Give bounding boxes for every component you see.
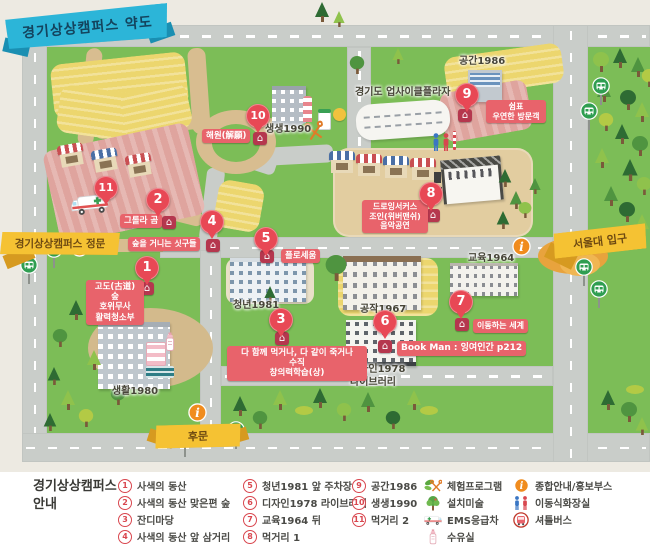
marker-number: 6: [373, 310, 397, 334]
bus-stop-icon: [590, 280, 608, 310]
marker-number: 1: [135, 256, 159, 280]
marker-10-label: 해원(解願): [202, 129, 250, 143]
legend-item: 3잔디마당: [118, 511, 230, 528]
tree-icon: [253, 411, 267, 429]
tree-icon: [272, 390, 288, 410]
legend-label: 생생1990: [371, 495, 417, 510]
map-marker-9[interactable]: 9: [455, 83, 479, 107]
tree-icon: [47, 367, 61, 385]
tree-icon: [386, 411, 400, 429]
market-stall: [356, 154, 382, 176]
tree-icon: [603, 186, 619, 206]
tree-icon: [350, 56, 364, 74]
marker-6-label: Book Man : 잉여인간 p212: [397, 341, 526, 356]
legend-label: 체험프로그램: [447, 478, 502, 493]
legend-item: 설치미술: [424, 494, 502, 511]
tree-icon: [619, 202, 635, 222]
legend-label: 청년1981 앞 주차장: [262, 478, 352, 493]
market-stall: [56, 142, 85, 168]
tree-icon: [326, 255, 347, 281]
legend-label: 수유실: [447, 529, 475, 544]
label-gyoyuk: 교육1964: [468, 253, 514, 266]
window-row: [364, 111, 442, 118]
tree-icon: [314, 2, 330, 22]
market-stall: [124, 152, 153, 178]
legend-item: 4사색의 동산 앞 삼거리: [118, 528, 230, 545]
marker-3-label: 다 함께 먹거나, 다 같이 죽거나 수직 창의력학습(상): [227, 346, 367, 381]
map-marker-11[interactable]: 11: [94, 176, 118, 200]
legend-number: 2: [118, 496, 132, 510]
map-marker-8[interactable]: 8: [419, 182, 443, 206]
info-booth-icon: [512, 477, 530, 494]
map-marker-2[interactable]: 2: [146, 188, 170, 212]
legend-label: 이동식화장실: [535, 495, 590, 510]
map-marker-7[interactable]: 7: [449, 290, 473, 314]
tree-icon: [420, 406, 436, 416]
legend: 경기상상캠퍼스 안내 1사색의 동산 2사색의 동산 맞은편 숲 3잔디마당 4…: [0, 472, 650, 548]
market-stall: [90, 147, 119, 173]
tree-icon: [498, 169, 512, 187]
legend-column-icons-1: 체험프로그램 설치미술 EMS응급차 수유실: [424, 477, 502, 545]
marker-number: 2: [146, 188, 170, 212]
legend-item: 10생생1990: [352, 494, 417, 511]
marker-1-label: 고도(古道) 숲 호위무사 활력청소부: [86, 280, 144, 325]
map-marker-3[interactable]: 3: [269, 308, 293, 332]
stage: [440, 155, 504, 204]
legend-column-1: 1사색의 동산 2사색의 동산 맞은편 숲 3잔디마당 4사색의 동산 앞 삼거…: [118, 477, 230, 545]
legend-item: 수유실: [424, 528, 502, 545]
map-marker-6[interactable]: 6: [373, 310, 397, 334]
legend-label: 사색의 동산: [137, 478, 186, 493]
legend-label: 먹거리 2: [371, 512, 409, 527]
marker-number: 11: [94, 176, 118, 200]
legend-item: 9공간1986: [352, 477, 417, 494]
legend-item: 이동식화장실: [512, 494, 612, 511]
legend-label: 공간1986: [371, 478, 417, 493]
nursing-room-icon: [164, 332, 176, 352]
shuttle-bus-icon: [512, 511, 530, 528]
info-icon: [512, 237, 531, 256]
tree-icon: [634, 102, 650, 122]
bus-stop-icon: [580, 102, 598, 132]
marker-9-label: 쉼표 우연한 방문객: [486, 100, 546, 123]
main-gate-ribbon: 경기상상캠퍼스 정문: [0, 232, 120, 255]
marker-4-label: 숲을 거니는 싯구들: [128, 237, 200, 251]
nursing-booth: [146, 342, 166, 366]
tree-icon: [599, 113, 613, 131]
legend-item: 8먹거리 1: [243, 528, 367, 545]
legend-item: 7교육1964 뒤: [243, 511, 367, 528]
marker-number: 7: [449, 290, 473, 314]
legend-item: EMS응급차: [424, 511, 502, 528]
nursing-room-icon: [424, 528, 442, 545]
legend-number: 11: [352, 513, 366, 527]
tree-icon: [60, 390, 76, 410]
marker-7-label: 이동하는 세계: [473, 319, 528, 333]
tower-decoration: [303, 96, 312, 122]
legend-label: 셔틀버스: [535, 512, 572, 527]
building-gongjak-1967: [343, 256, 421, 310]
tree-icon: [360, 392, 376, 412]
tree-icon: [600, 390, 616, 410]
legend-label: EMS응급차: [447, 512, 499, 527]
legend-number: 6: [243, 496, 257, 510]
map-marker-10[interactable]: 10: [246, 104, 270, 128]
tree-icon: [635, 417, 649, 435]
legend-label: 설치미술: [447, 495, 484, 510]
legend-item: 6디자인1978 라이브러리: [243, 494, 367, 511]
campus-map: 생활1980 청년1981 공작1967 디자인1978 라이브러리 교육196…: [0, 0, 650, 548]
tree-icon: [232, 396, 248, 416]
marker-number: 8: [419, 182, 443, 206]
experience-program-icon: [424, 477, 442, 494]
tree-icon: [53, 329, 67, 347]
tree-icon: [642, 69, 650, 87]
craft-bell-icon: [333, 108, 346, 121]
market-stall: [410, 158, 436, 180]
marker-number: 9: [455, 83, 479, 107]
legend-label: 먹거리 1: [262, 529, 300, 544]
legend-column-icons-2: 종합안내/홍보부스 이동식화장실 셔틀버스: [512, 477, 612, 528]
market-stall: [329, 151, 355, 173]
legend-number: 4: [118, 530, 132, 544]
info-icon: [188, 403, 207, 422]
legend-number: 10: [352, 496, 366, 510]
house-pin-icon: ⌂: [162, 216, 176, 229]
tree-icon: [333, 11, 346, 27]
container-stack: [146, 366, 174, 378]
tree-icon: [637, 177, 650, 195]
marker-5-label: 플로세움: [281, 249, 320, 263]
label-gonggan: 공간1986: [459, 56, 505, 69]
marker-number: 5: [254, 227, 278, 251]
marker-number: 10: [246, 104, 270, 128]
legend-column-2: 5청년1981 앞 주차장 6디자인1978 라이브러리 7교육1964 뒤 8…: [243, 477, 367, 545]
tree-icon: [593, 52, 609, 72]
legend-label: 잔디마당: [137, 512, 174, 527]
legend-number: 8: [243, 530, 257, 544]
back-gate-ribbon: 후문: [155, 423, 242, 450]
tree-icon: [392, 48, 405, 64]
tree-icon: [632, 136, 648, 156]
legend-number: 7: [243, 513, 257, 527]
market-stall: [383, 156, 409, 178]
marker-number: 4: [200, 210, 224, 234]
installation-art-icon: [424, 494, 442, 511]
legend-label: 사색의 동산 앞 삼거리: [137, 529, 230, 544]
legend-item: 1사색의 동산: [118, 477, 230, 494]
label-saenghwal: 생활1980: [100, 386, 170, 399]
tree-icon: [79, 409, 93, 427]
legend-label: 사색의 동산 맞은편 숲: [137, 495, 230, 510]
tree-icon: [614, 124, 630, 144]
legend-column-3: 9공간1986 10생생1990 11먹거리 2: [352, 477, 417, 528]
legend-item: 체험프로그램: [424, 477, 502, 494]
tree-icon: [86, 350, 102, 370]
legend-label: 교육1964 뒤: [262, 512, 321, 527]
legend-number: 1: [118, 479, 132, 493]
legend-number: 5: [243, 479, 257, 493]
legend-item: 11먹거리 2: [352, 511, 417, 528]
tree-icon: [529, 178, 542, 194]
tree-icon: [295, 406, 311, 416]
flag-pole: [453, 131, 456, 150]
map-marker-4[interactable]: 4: [200, 210, 224, 234]
legend-item: 2사색의 동산 맞은편 숲: [118, 494, 230, 511]
portable-toilet-icon: [441, 133, 451, 151]
legend-item: 5청년1981 앞 주차장: [243, 477, 367, 494]
portable-toilet-icon: [431, 133, 441, 151]
legend-number: 9: [352, 479, 366, 493]
tree-icon: [496, 211, 510, 229]
tree-icon: [612, 48, 628, 68]
tree-icon: [312, 388, 328, 408]
window-row: [364, 121, 442, 128]
map-marker-5[interactable]: 5: [254, 227, 278, 251]
label-upcycle: 경기도 업사이클플라자: [355, 87, 450, 100]
tree-icon: [68, 300, 84, 320]
tree-icon: [626, 385, 642, 395]
legend-label: 종합안내/홍보부스: [535, 478, 612, 493]
legend-item: 셔틀버스: [512, 511, 612, 528]
label-saengsaeng: 생생1990: [265, 124, 311, 137]
legend-number: 3: [118, 513, 132, 527]
ems-ambulance-icon: [424, 511, 442, 528]
marker-number: 3: [269, 308, 293, 332]
map-marker-1[interactable]: 1: [135, 256, 159, 280]
tree-icon: [594, 148, 610, 168]
legend-item: 종합안내/홍보부스: [512, 477, 612, 494]
tree-icon: [337, 403, 351, 421]
tree-icon: [43, 413, 57, 431]
portable-toilet-icon: [512, 494, 530, 511]
tree-icon: [519, 202, 532, 218]
legend-title: 경기상상캠퍼스 안내: [33, 478, 117, 513]
